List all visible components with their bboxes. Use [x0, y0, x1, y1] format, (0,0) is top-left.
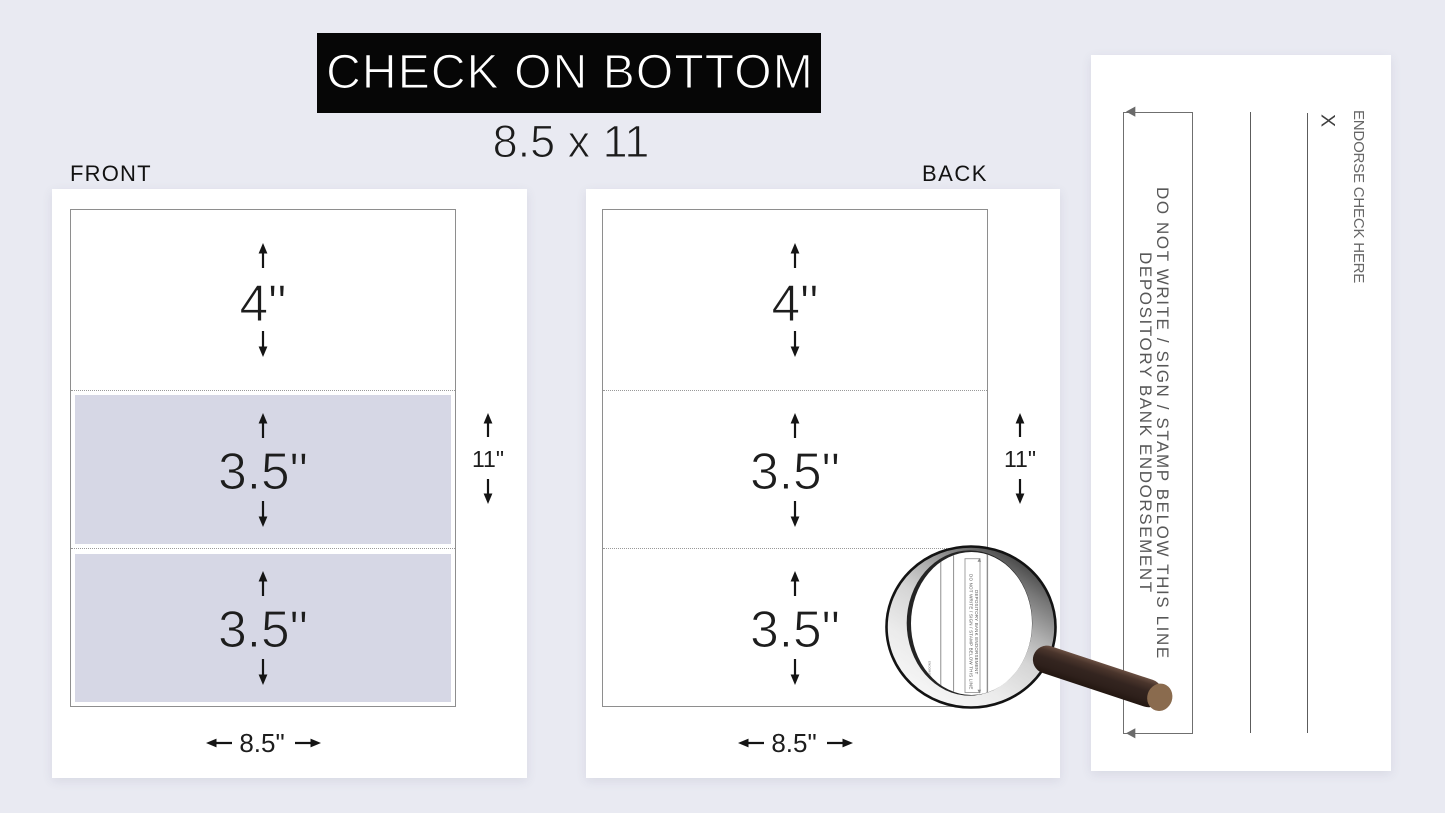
- svg-text:DO NOT WRITE / SIGN / STAMP BE: DO NOT WRITE / SIGN / STAMP BELOW THIS L…: [969, 574, 974, 690]
- svg-text:DEPOSITORY BANK ENDORSEMENT: DEPOSITORY BANK ENDORSEMENT: [974, 590, 979, 674]
